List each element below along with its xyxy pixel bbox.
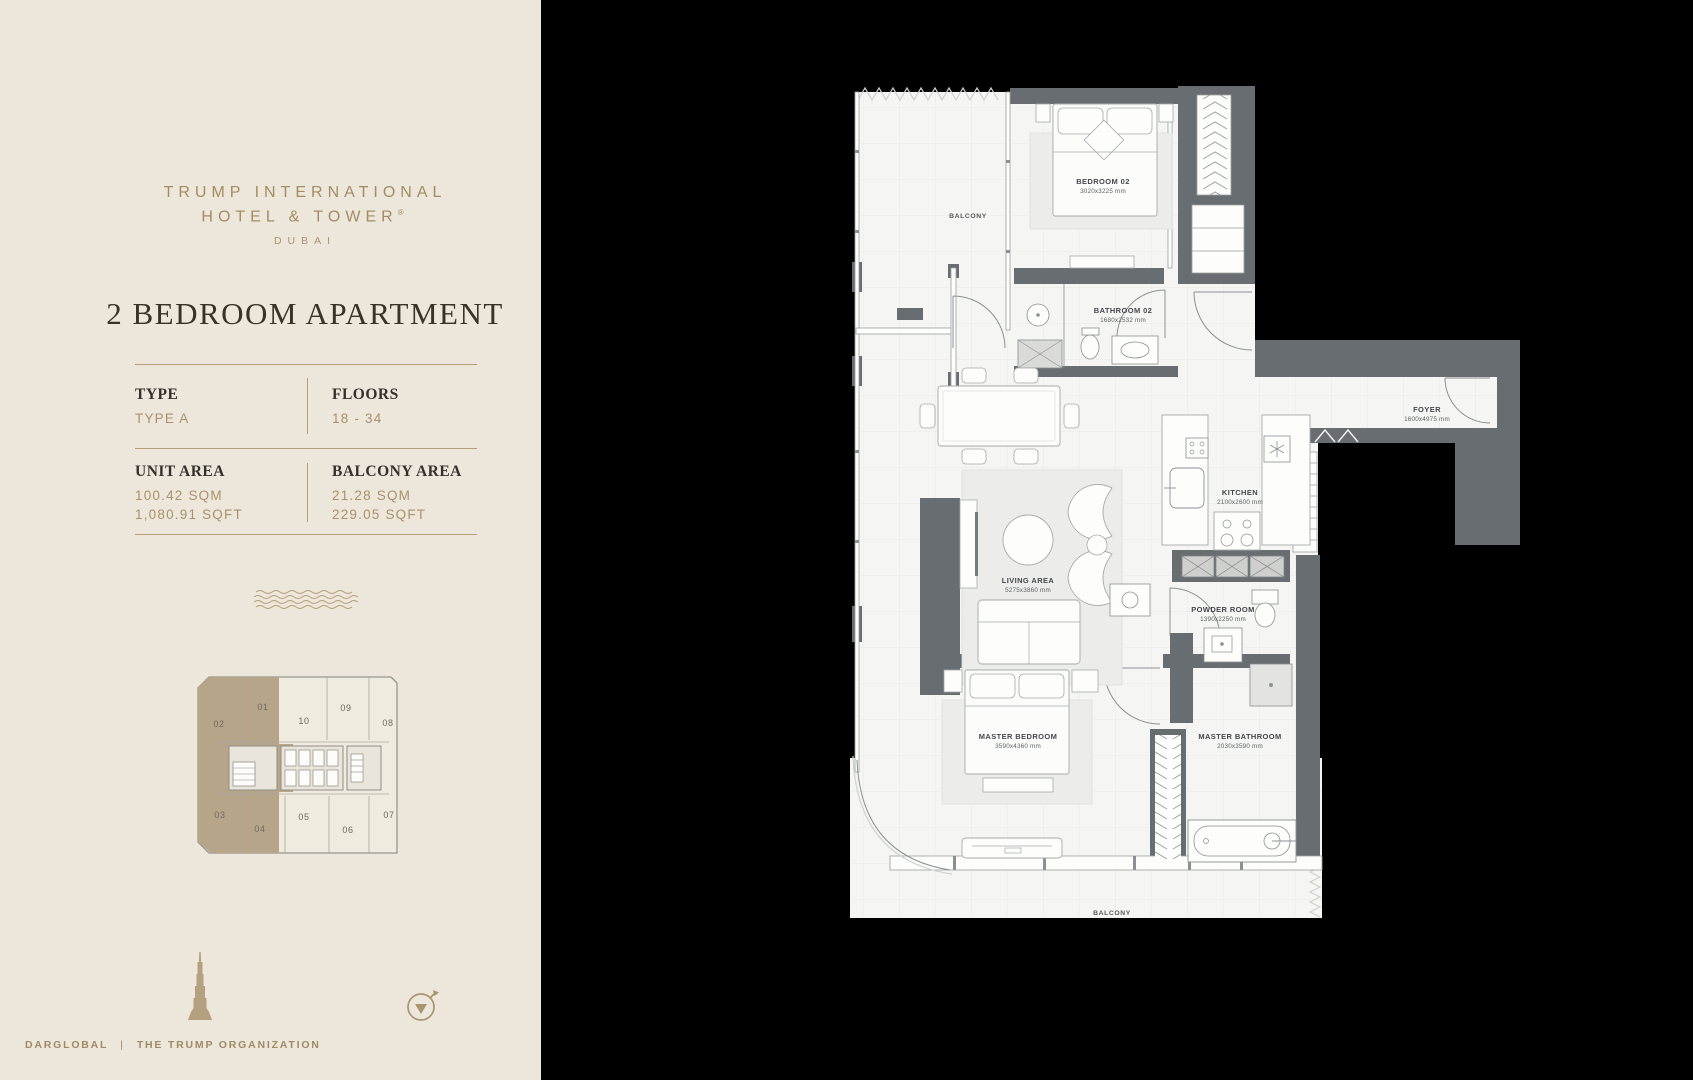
unit-label-02: 02: [213, 719, 224, 729]
key-plan: 01 02 03 04 05 06 07 08 09 10: [193, 674, 403, 862]
unit-label-09: 09: [340, 703, 351, 713]
spec-balcony-area-sqm: 21.28 SQM: [332, 488, 497, 503]
room-label-kitchen: KITCHEN: [1222, 488, 1258, 497]
unit-label-05: 05: [298, 812, 309, 822]
compass-icon: [403, 986, 443, 1026]
brand-name-line2: HOTEL & TOWER®: [35, 208, 575, 226]
spec-balcony-area-sqft: 229.05 SQFT: [332, 507, 497, 522]
footer: DARGLOBAL|THE TRUMP ORGANIZATION: [25, 1039, 321, 1051]
unit-label-07: 07: [383, 810, 394, 820]
spec-unit-area-label: UNIT AREA: [135, 463, 300, 481]
room-dims-living: 5275x3860 mm: [1005, 587, 1051, 594]
room-label-bathroom2: BATHROOM 02: [1094, 306, 1152, 315]
spec-type: TYPE TYPE A: [135, 386, 300, 426]
divider-vertical-2: [307, 463, 308, 522]
unit-label-06: 06: [342, 825, 353, 835]
room-dims-bathroom2: 1680x2532 mm: [1100, 317, 1146, 324]
divider-rule-2: [135, 448, 477, 449]
spec-type-value: TYPE A: [135, 411, 300, 426]
brand-name-text: HOTEL & TOWER: [201, 208, 397, 225]
unit-label-01: 01: [257, 702, 268, 712]
room-dims-kitchen: 2100x2600 mm: [1217, 499, 1263, 506]
footer-organization: THE TRUMP ORGANIZATION: [137, 1039, 321, 1051]
registered-mark: ®: [398, 208, 409, 217]
room-label-powder: POWDER ROOM: [1191, 605, 1255, 614]
room-label-balcony-top: BALCONY: [949, 213, 987, 220]
brochure-page: TRUMP INTERNATIONAL HOTEL & TOWER® DUBAI…: [0, 0, 1693, 1080]
room-dims-master-bathroom: 2030x3590 mm: [1217, 743, 1263, 750]
room-label-bedroom2: BEDROOM 02: [1076, 177, 1130, 186]
spec-balcony-area: BALCONY AREA 21.28 SQM 229.05 SQFT: [332, 463, 497, 522]
wave-ornament-icon: [254, 589, 358, 609]
key-plan-core: [229, 746, 381, 790]
spec-floors-value: 18 - 34: [332, 411, 497, 426]
room-label-master-bedroom: MASTER BEDROOM: [979, 732, 1058, 741]
spec-unit-area: UNIT AREA 100.42 SQM 1,080.91 SQFT: [135, 463, 300, 522]
brand-city: DUBAI: [35, 235, 575, 247]
spec-floors-label: FLOORS: [332, 386, 497, 404]
tower-logo-icon: [183, 950, 217, 1024]
brand-name-line1: TRUMP INTERNATIONAL: [35, 184, 575, 202]
room-dims-powder: 1390x2250 mm: [1200, 616, 1246, 623]
footer-separator: |: [120, 1039, 125, 1051]
shaft-chevron: [1155, 735, 1181, 859]
spec-floors: FLOORS 18 - 34: [332, 386, 497, 426]
room-label-master-bathroom: MASTER BATHROOM: [1198, 732, 1281, 741]
room-dims-master-bedroom: 3590x4360 mm: [995, 743, 1041, 750]
room-label-foyer: FOYER: [1413, 405, 1441, 414]
spec-unit-area-sqft: 1,080.91 SQFT: [135, 507, 300, 522]
room-dims-bedroom2: 3020x3225 mm: [1080, 188, 1126, 195]
unit-label-08: 08: [382, 718, 393, 728]
closet-band: [1182, 556, 1284, 577]
page-title: 2 BEDROOM APARTMENT: [35, 296, 575, 332]
unit-label-03: 03: [214, 810, 225, 820]
unit-label-10: 10: [298, 716, 309, 726]
spec-unit-area-sqm: 100.42 SQM: [135, 488, 300, 503]
room-label-balcony-bottom: BALCONY: [1093, 910, 1131, 917]
plan-area: BALCONY BEDROOM 02 3020x3225 mm BATHROOM…: [541, 0, 1693, 1080]
footer-developer: DARGLOBAL: [25, 1039, 108, 1051]
spec-balcony-area-label: BALCONY AREA: [332, 463, 497, 481]
divider-rule-3: [135, 534, 477, 535]
divider-rule-1: [135, 364, 477, 365]
room-label-living: LIVING AREA: [1002, 576, 1055, 585]
floor-plan: BALCONY BEDROOM 02 3020x3225 mm BATHROOM…: [840, 60, 1530, 930]
unit-label-04: 04: [254, 824, 265, 834]
spec-type-label: TYPE: [135, 386, 300, 404]
divider-vertical-1: [307, 378, 308, 434]
info-panel: TRUMP INTERNATIONAL HOTEL & TOWER® DUBAI…: [0, 0, 541, 1080]
brand-block: TRUMP INTERNATIONAL HOTEL & TOWER® DUBAI: [35, 184, 575, 247]
room-dims-foyer: 1600x4975 mm: [1404, 416, 1450, 423]
